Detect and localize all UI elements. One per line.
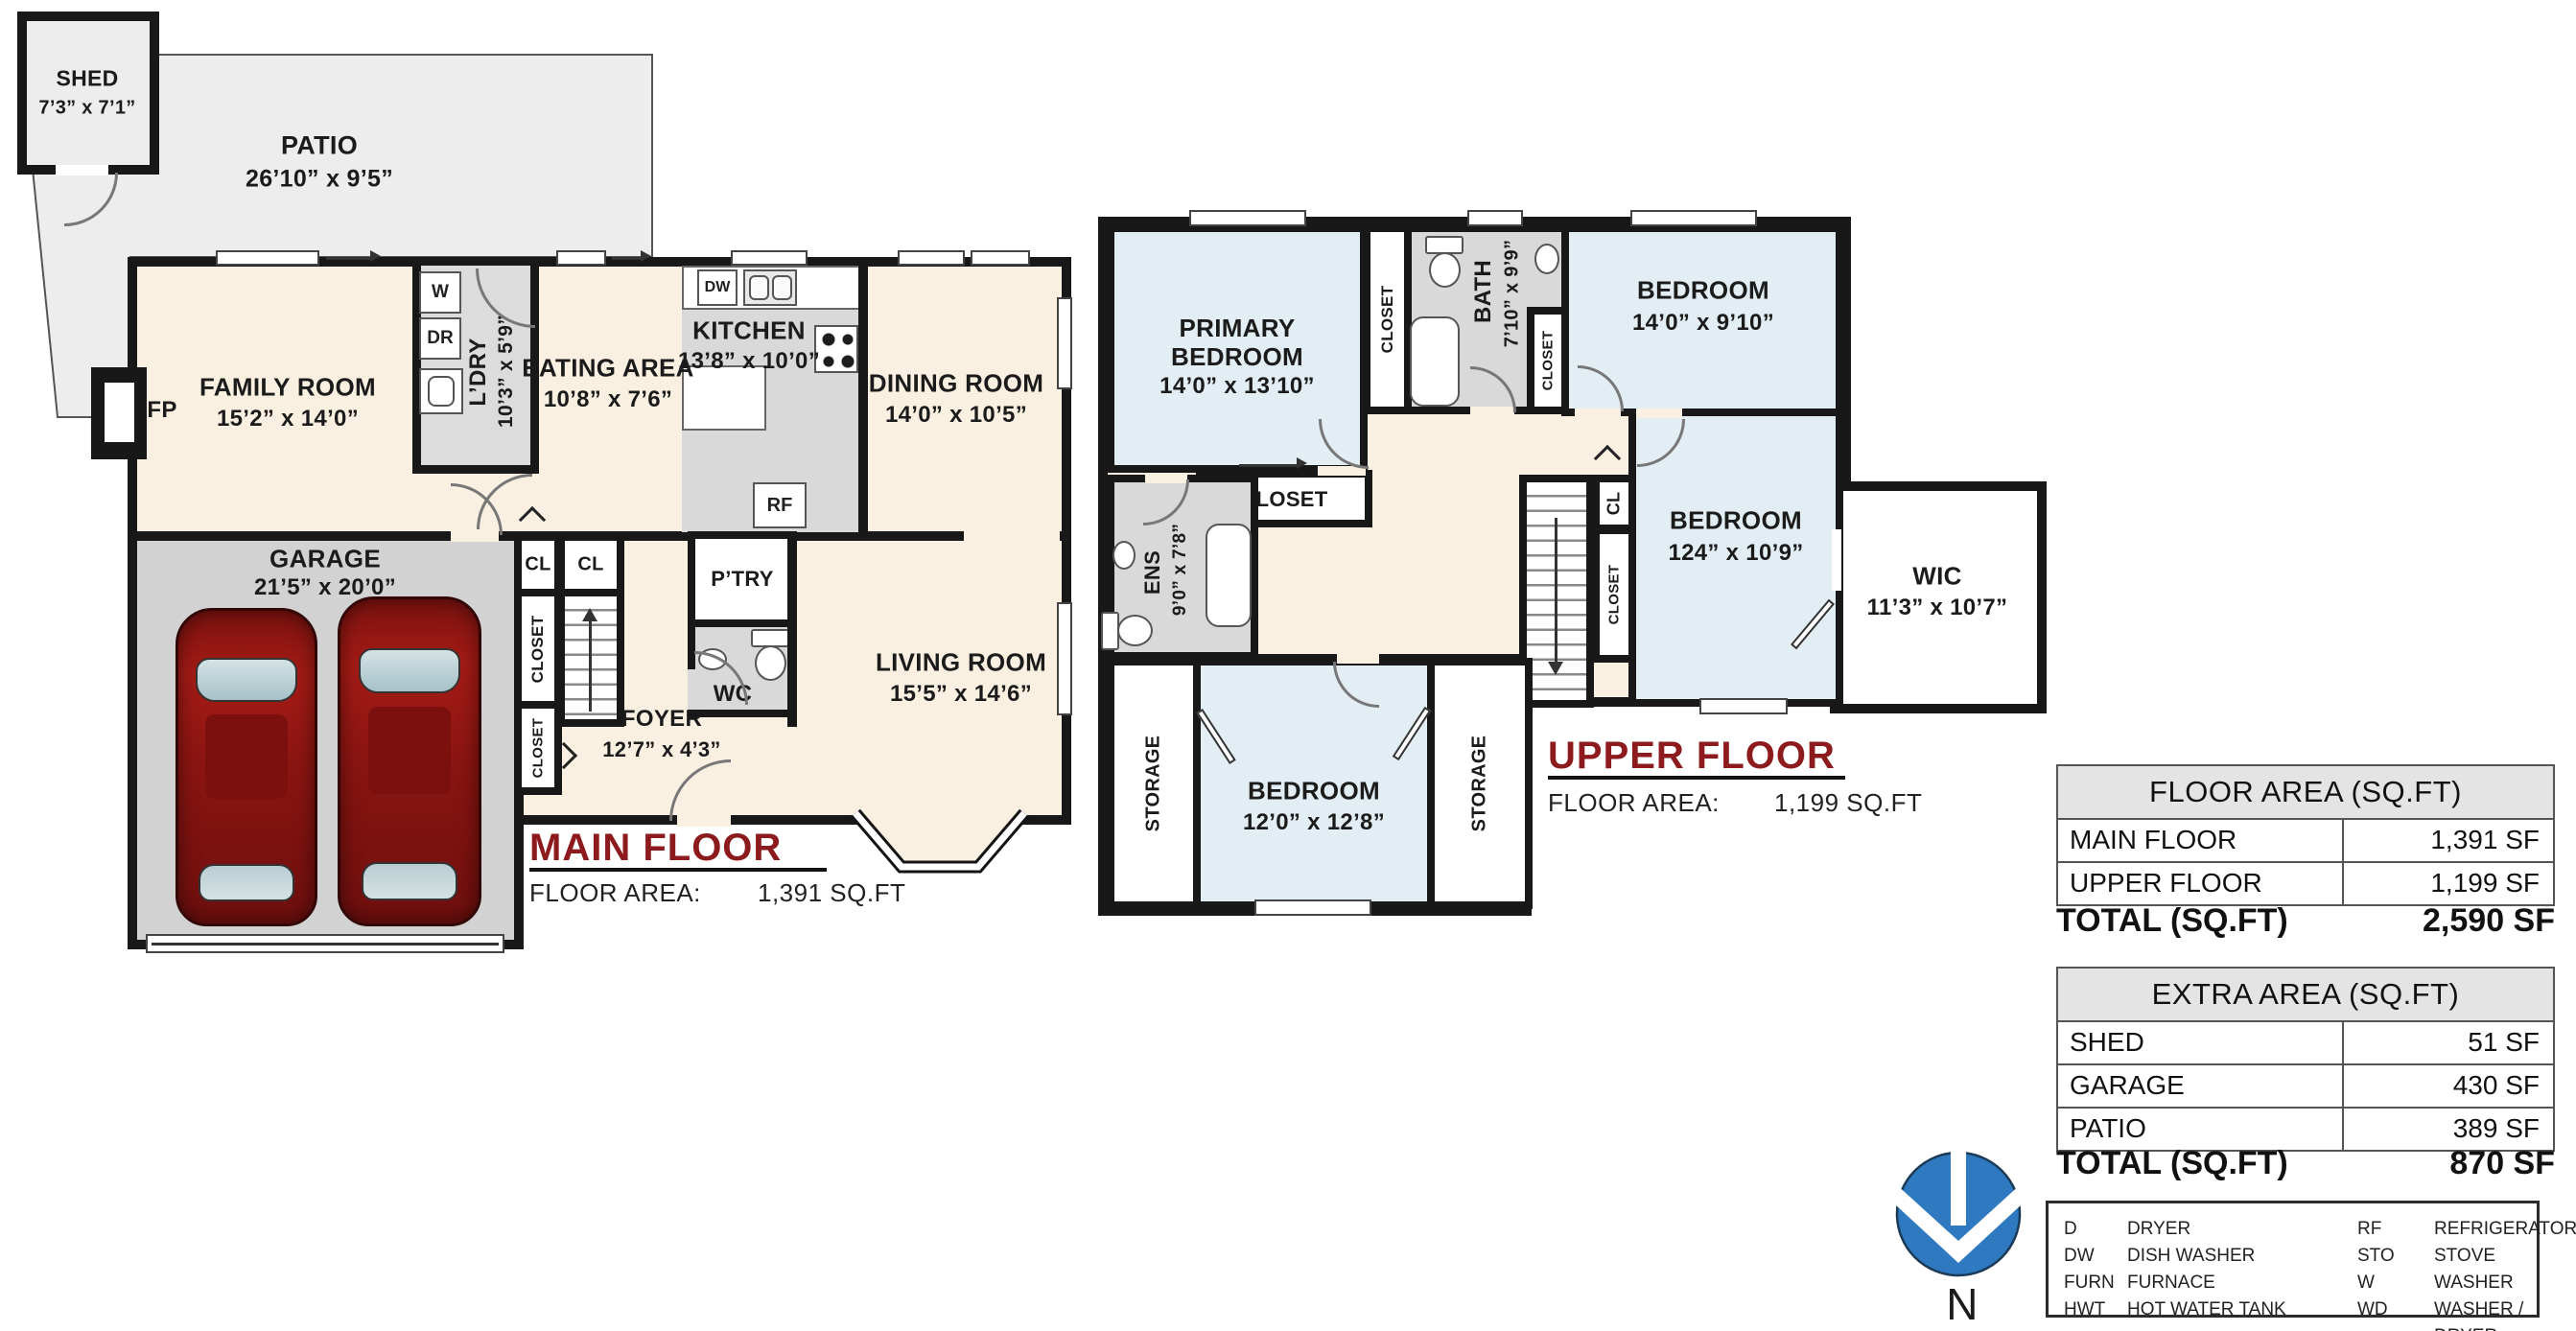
dishwasher-box: DW	[697, 269, 738, 306]
bedroom-bottom-label: BEDROOM	[1248, 777, 1380, 806]
window	[1467, 210, 1523, 226]
bath-sink	[1534, 244, 1559, 274]
bedroom-middle-dims: 124” x 10’9”	[1668, 540, 1803, 567]
garage-label: GARAGE	[269, 545, 381, 574]
foyer-dims: 12’7” x 4’3”	[602, 737, 720, 762]
extra-area-table-header: EXTRA AREA (SQ.FT)	[2058, 969, 2553, 1022]
car-windshield	[359, 648, 461, 693]
window	[556, 250, 606, 266]
legend-abbr: D	[2064, 1216, 2127, 1243]
legend-abbr: STO	[2357, 1243, 2434, 1270]
living-room-dims: 15’5” x 14’6”	[890, 681, 1032, 708]
closet-cl-b-label: CL	[577, 554, 603, 576]
floor-area-total: TOTAL (SQ.FT) 2,590 SF	[2056, 902, 2555, 940]
table-row: SHED 51 SF	[2058, 1022, 2553, 1065]
floorplan-canvas: PATIO 26’10” x 9’5” SHED 7’3” x 7’1” W D…	[0, 0, 2576, 1331]
kitchen-dims: 13’8” x 10’0”	[678, 348, 820, 375]
stairs-up-arrow	[582, 608, 597, 621]
window	[971, 250, 1030, 266]
fireplace-inner	[105, 383, 134, 442]
wic-label: WIC	[1912, 562, 1961, 592]
main-floor-title-underline	[529, 868, 827, 872]
upper-floor-title-underline	[1548, 776, 1845, 780]
foyer-label: FOYER	[621, 706, 702, 733]
stairs-arrow-shaft	[589, 621, 592, 712]
legend-abbr: W	[2357, 1270, 2434, 1296]
bedroom-topright-dims: 14’0” x 9’10”	[1632, 310, 1774, 337]
upper-floor-area-value: 1,199 SQ.FT	[1774, 788, 1922, 818]
washer-box: W	[419, 271, 461, 314]
ensuite-toilet	[1101, 612, 1151, 654]
shed-label: SHED	[56, 66, 118, 92]
row-label: SHED	[2058, 1022, 2344, 1063]
closet-stairs-1-label: CLOSET	[528, 616, 548, 684]
legend-term: WASHER	[2434, 1270, 2576, 1296]
eating-area-dims: 10’8” x 7’6”	[544, 386, 672, 413]
legend-term: HOT WATER TANK	[2127, 1296, 2357, 1331]
main-floor-area-label: FLOOR AREA:	[529, 878, 701, 908]
bedroom-middle-label: BEDROOM	[1670, 506, 1802, 536]
patio-dims: 26’10” x 9’5”	[246, 166, 393, 194]
dryer-box: DR	[419, 317, 461, 360]
legend-term: DISH WASHER	[2127, 1243, 2357, 1270]
compass-icon	[1891, 1147, 2026, 1281]
dining-room-label: DINING ROOM	[869, 369, 1043, 399]
extra-area-table: EXTRA AREA (SQ.FT) SHED 51 SF GARAGE 430…	[2056, 967, 2555, 1152]
table-row: PATIO 389 SF	[2058, 1109, 2553, 1150]
bay-window	[842, 807, 1038, 880]
legend-abbr: WD	[2357, 1296, 2434, 1331]
slider-door-arrow	[1239, 464, 1300, 467]
row-value: 51 SF	[2344, 1022, 2553, 1063]
table-row: UPPER FLOOR 1,199 SF	[2058, 863, 2553, 904]
upper-floor-area-label: FLOOR AREA:	[1548, 788, 1720, 818]
family-room-label: FAMILY ROOM	[199, 373, 376, 403]
bedroom-topright-label: BEDROOM	[1637, 276, 1769, 306]
floor-area-table: FLOOR AREA (SQ.FT) MAIN FLOOR 1,391 SF U…	[2056, 764, 2555, 906]
legend-term: FURNACE	[2127, 1270, 2357, 1296]
legend-abbr: HWT	[2064, 1296, 2127, 1331]
legend-box: DDRYER RFREFRIGERATOR DWDISH WASHER STOS…	[2046, 1201, 2540, 1318]
closet-primary-side-label: CLOSET	[1378, 286, 1397, 354]
total-value: 2,590 SF	[2423, 902, 2555, 940]
legend-abbr: FURN	[2064, 1270, 2127, 1296]
total-label: TOTAL (SQ.FT)	[2056, 902, 2288, 940]
wic-door-opening	[1832, 529, 1841, 591]
kitchen-sink	[743, 269, 797, 306]
window	[1057, 602, 1072, 715]
closet-cl-mid-label: CL	[1604, 492, 1625, 516]
window	[1057, 297, 1072, 389]
closet-mid-label: CLOSET	[1606, 565, 1623, 625]
window	[1699, 698, 1788, 714]
window	[898, 250, 965, 266]
row-value: 1,391 SF	[2344, 820, 2553, 861]
main-floor-title: MAIN FLOOR	[529, 827, 782, 870]
legend-term: STOVE	[2434, 1243, 2576, 1270]
window	[731, 250, 808, 266]
pantry-label: P’TRY	[711, 567, 773, 592]
window	[1630, 210, 1757, 226]
bath-label: BATH	[1470, 260, 1497, 323]
legend-term: REFRIGERATOR	[2434, 1216, 2576, 1243]
kitchen-island	[682, 365, 766, 431]
laundry-sink	[419, 368, 463, 414]
interior-wall	[787, 531, 797, 727]
ensuite-dims: 9’0” x 7’8”	[1170, 524, 1191, 616]
primary-bedroom-label: PRIMARY BEDROOM	[1132, 314, 1343, 371]
laundry-dims: 10’3” x 5’9”	[495, 315, 518, 428]
garage-door-line	[152, 943, 499, 946]
row-value: 1,199 SF	[2344, 863, 2553, 904]
slider-door-arrow	[326, 257, 374, 260]
floor-area-table-header: FLOOR AREA (SQ.FT)	[2058, 766, 2553, 820]
storage-left-label: STORAGE	[1143, 736, 1165, 832]
bath-dims: 7’10” x 9’9”	[1502, 240, 1524, 348]
compass-north-label: N	[1946, 1278, 1979, 1330]
bath-toilet	[1421, 236, 1464, 286]
stairs-down-arrow	[1548, 662, 1563, 675]
wic-dims: 11’3” x 10’7”	[1867, 595, 2008, 621]
dryer-label: DR	[427, 328, 453, 349]
upper-floor-title: UPPER FLOOR	[1548, 735, 1836, 778]
table-row: MAIN FLOOR 1,391 SF	[2058, 820, 2553, 863]
bath-tub	[1410, 316, 1460, 407]
ensuite-label: ENS	[1140, 550, 1165, 595]
row-label: PATIO	[2058, 1109, 2344, 1150]
car-windshield	[196, 658, 296, 702]
family-room-dims: 15’2” x 14’0”	[217, 406, 359, 432]
closet-bath-side-label: CLOSET	[1540, 331, 1557, 391]
window	[1189, 210, 1306, 226]
total-label: TOTAL (SQ.FT)	[2056, 1145, 2288, 1182]
dining-room-dims: 14’0” x 10’5”	[885, 402, 1027, 429]
interior-wall	[858, 257, 868, 541]
car-roof	[368, 707, 451, 794]
car-left	[176, 608, 317, 926]
stairs-arrow-shaft	[1555, 518, 1557, 662]
laundry-sink-basin	[428, 376, 455, 407]
laundry-label: L’DRY	[465, 338, 492, 406]
closet-stairs-2-label: CLOSET	[530, 718, 547, 779]
fireplace-label: FP	[147, 397, 176, 424]
refrigerator-label: RF	[767, 495, 793, 517]
legend-term: WASHER / DRYER	[2434, 1296, 2576, 1331]
patio-label: PATIO	[281, 131, 358, 161]
car-rear-glass	[362, 862, 458, 901]
refrigerator-box: RF	[753, 482, 807, 528]
kitchen-label: KITCHEN	[692, 316, 806, 346]
bedroom-bottom-dims: 12’0” x 12’8”	[1243, 809, 1385, 836]
row-label: MAIN FLOOR	[2058, 820, 2344, 861]
total-value: 870 SF	[2449, 1145, 2555, 1182]
closet-cl-a-label: CL	[525, 554, 550, 576]
window	[216, 250, 319, 266]
row-label: UPPER FLOOR	[2058, 863, 2344, 904]
slider-door-arrow	[612, 257, 644, 260]
extra-area-total: TOTAL (SQ.FT) 870 SF	[2056, 1145, 2555, 1182]
bedroom-middle-door-opening	[1636, 409, 1682, 418]
room-shed	[17, 12, 159, 175]
legend-term: DRYER	[2127, 1216, 2357, 1243]
storage-right-label: STORAGE	[1469, 736, 1491, 832]
washer-label: W	[432, 282, 449, 303]
stove-icon	[814, 325, 858, 373]
row-value: 430 SF	[2344, 1065, 2553, 1107]
car-roof	[205, 714, 287, 799]
dining-living-opening	[964, 531, 1060, 544]
main-floor-area-value: 1,391 SQ.FT	[758, 878, 905, 908]
primary-bedroom-dims: 14’0” x 13’10”	[1159, 373, 1315, 400]
ensuite-sink	[1112, 541, 1136, 570]
legend-abbr: RF	[2357, 1216, 2434, 1243]
table-row: GARAGE 430 SF	[2058, 1065, 2553, 1109]
window	[1254, 899, 1371, 916]
car-rear-glass	[199, 864, 293, 901]
ensuite-tub	[1206, 524, 1252, 627]
wc-toilet	[747, 629, 789, 679]
living-room-label: LIVING ROOM	[876, 648, 1046, 678]
shed-dims: 7’3” x 7’1”	[38, 98, 135, 120]
car-right	[338, 596, 481, 926]
row-value: 389 SF	[2344, 1109, 2553, 1150]
dishwasher-label: DW	[705, 279, 731, 296]
eating-area-label: EATING AREA	[522, 354, 694, 384]
legend-abbr: DW	[2064, 1243, 2127, 1270]
row-label: GARAGE	[2058, 1065, 2344, 1107]
